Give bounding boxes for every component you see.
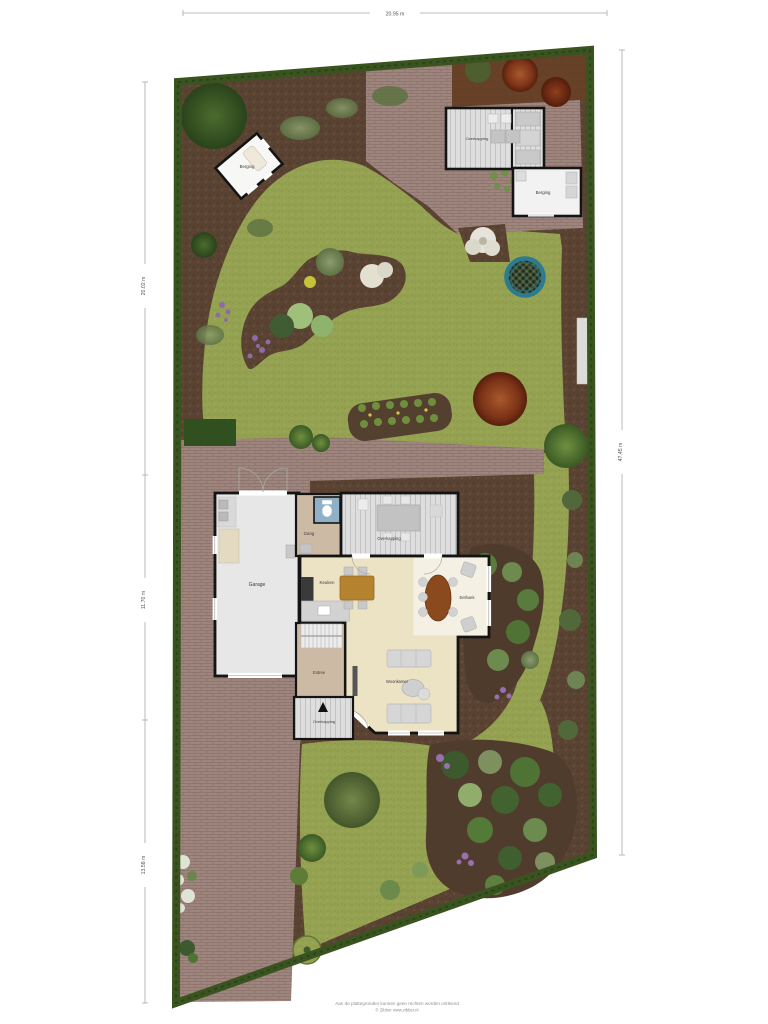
dimension-left-upper: 20.02 m — [141, 277, 147, 296]
room-overkapping-front: Overkapping — [294, 697, 353, 739]
disclaimer: Aan de plattegronden kunnen geen rechten… — [335, 1001, 459, 1013]
dimension-left-lower: 13.58 m — [141, 856, 147, 875]
sofa — [387, 704, 431, 723]
disclaimer-line1: Aan de plattegronden kunnen geen rechten… — [335, 1001, 459, 1006]
room-gang: Gang — [296, 494, 341, 556]
trampoline — [507, 259, 544, 296]
overkapping-front-label: Overkapping — [313, 719, 335, 724]
sofa — [387, 650, 431, 667]
woonkamer-label: Woonkamer — [386, 679, 409, 684]
dimension-right: 47.45 m — [618, 443, 624, 462]
disclaimer-line2: © Zibber www.zibber.nl — [376, 1008, 419, 1013]
tree — [181, 83, 247, 149]
garden-overkapping-label: Overkapping — [466, 136, 489, 141]
tree — [544, 424, 588, 468]
shed-right-label: Berging — [536, 190, 551, 195]
dining-table — [425, 575, 451, 621]
keuken-label: Keuken — [320, 580, 335, 585]
entree-label: Entree — [313, 670, 326, 675]
plan-drawing: 20.95 m 20.02 m 11.70 m 13.58 m 47.45 m — [0, 0, 768, 1024]
eethoek-label: Eethoek — [459, 595, 475, 600]
tv-board — [353, 666, 358, 696]
side-path — [577, 318, 588, 384]
garden-floorplan: 20.95 m 20.02 m 11.70 m 13.58 m 47.45 m — [0, 0, 768, 1024]
shed-left-label: Berging — [240, 164, 255, 169]
conifer-tree — [324, 772, 380, 828]
garden-overkapping: Overkapping — [446, 108, 544, 169]
shed-right: Berging — [513, 168, 581, 217]
tree — [191, 232, 217, 258]
red-tree — [502, 56, 538, 92]
room-garage: Garage — [213, 468, 299, 678]
dimension-left-middle: 11.70 m — [141, 591, 147, 609]
overkapping-house-label: Overkapping — [377, 536, 401, 541]
kitchen-table — [340, 576, 374, 600]
red-tree — [541, 77, 571, 107]
red-tree — [473, 372, 527, 426]
dimension-top: 20.95 m — [386, 12, 405, 18]
room-overkapping-house: Overkapping — [341, 493, 458, 556]
garage-label: Garage — [249, 582, 266, 588]
hedge-block — [184, 419, 236, 446]
gang-label: Gang — [304, 531, 315, 536]
